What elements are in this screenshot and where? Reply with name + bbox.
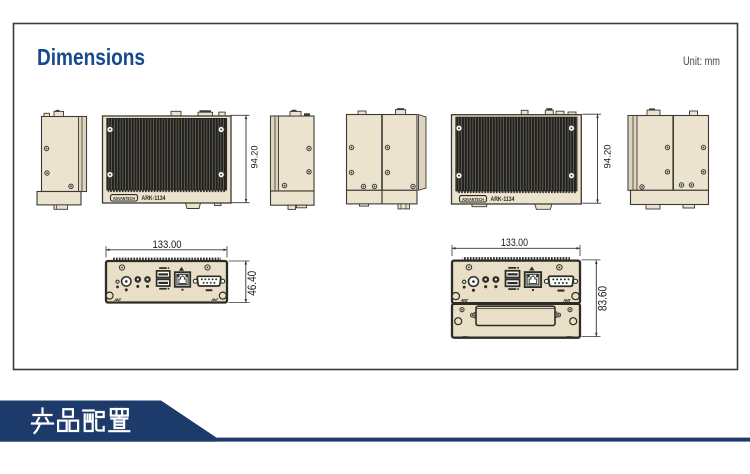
- svg-text:ANT: ANT: [460, 298, 469, 303]
- svg-text:ANT: ANT: [562, 298, 571, 303]
- svg-text:46.40: 46.40: [245, 271, 259, 296]
- svg-text:ADVANTECH: ADVANTECH: [113, 196, 136, 201]
- svg-text:ARK-1134: ARK-1134: [491, 196, 515, 203]
- svg-text:83.60: 83.60: [595, 286, 609, 311]
- svg-text:ARK-1134: ARK-1134: [142, 195, 166, 202]
- svg-text:ADVANTECH: ADVANTECH: [462, 197, 485, 202]
- svg-text:Dimensions: Dimensions: [37, 44, 145, 70]
- svg-text:ANT: ANT: [113, 297, 122, 302]
- svg-text:94.20: 94.20: [250, 146, 261, 169]
- svg-text:Unit: mm: Unit: mm: [683, 54, 720, 68]
- svg-text:94.20: 94.20: [603, 145, 614, 169]
- svg-text:133.00: 133.00: [501, 237, 528, 249]
- svg-text:133.00: 133.00: [153, 239, 182, 251]
- svg-text:ANT: ANT: [210, 297, 219, 302]
